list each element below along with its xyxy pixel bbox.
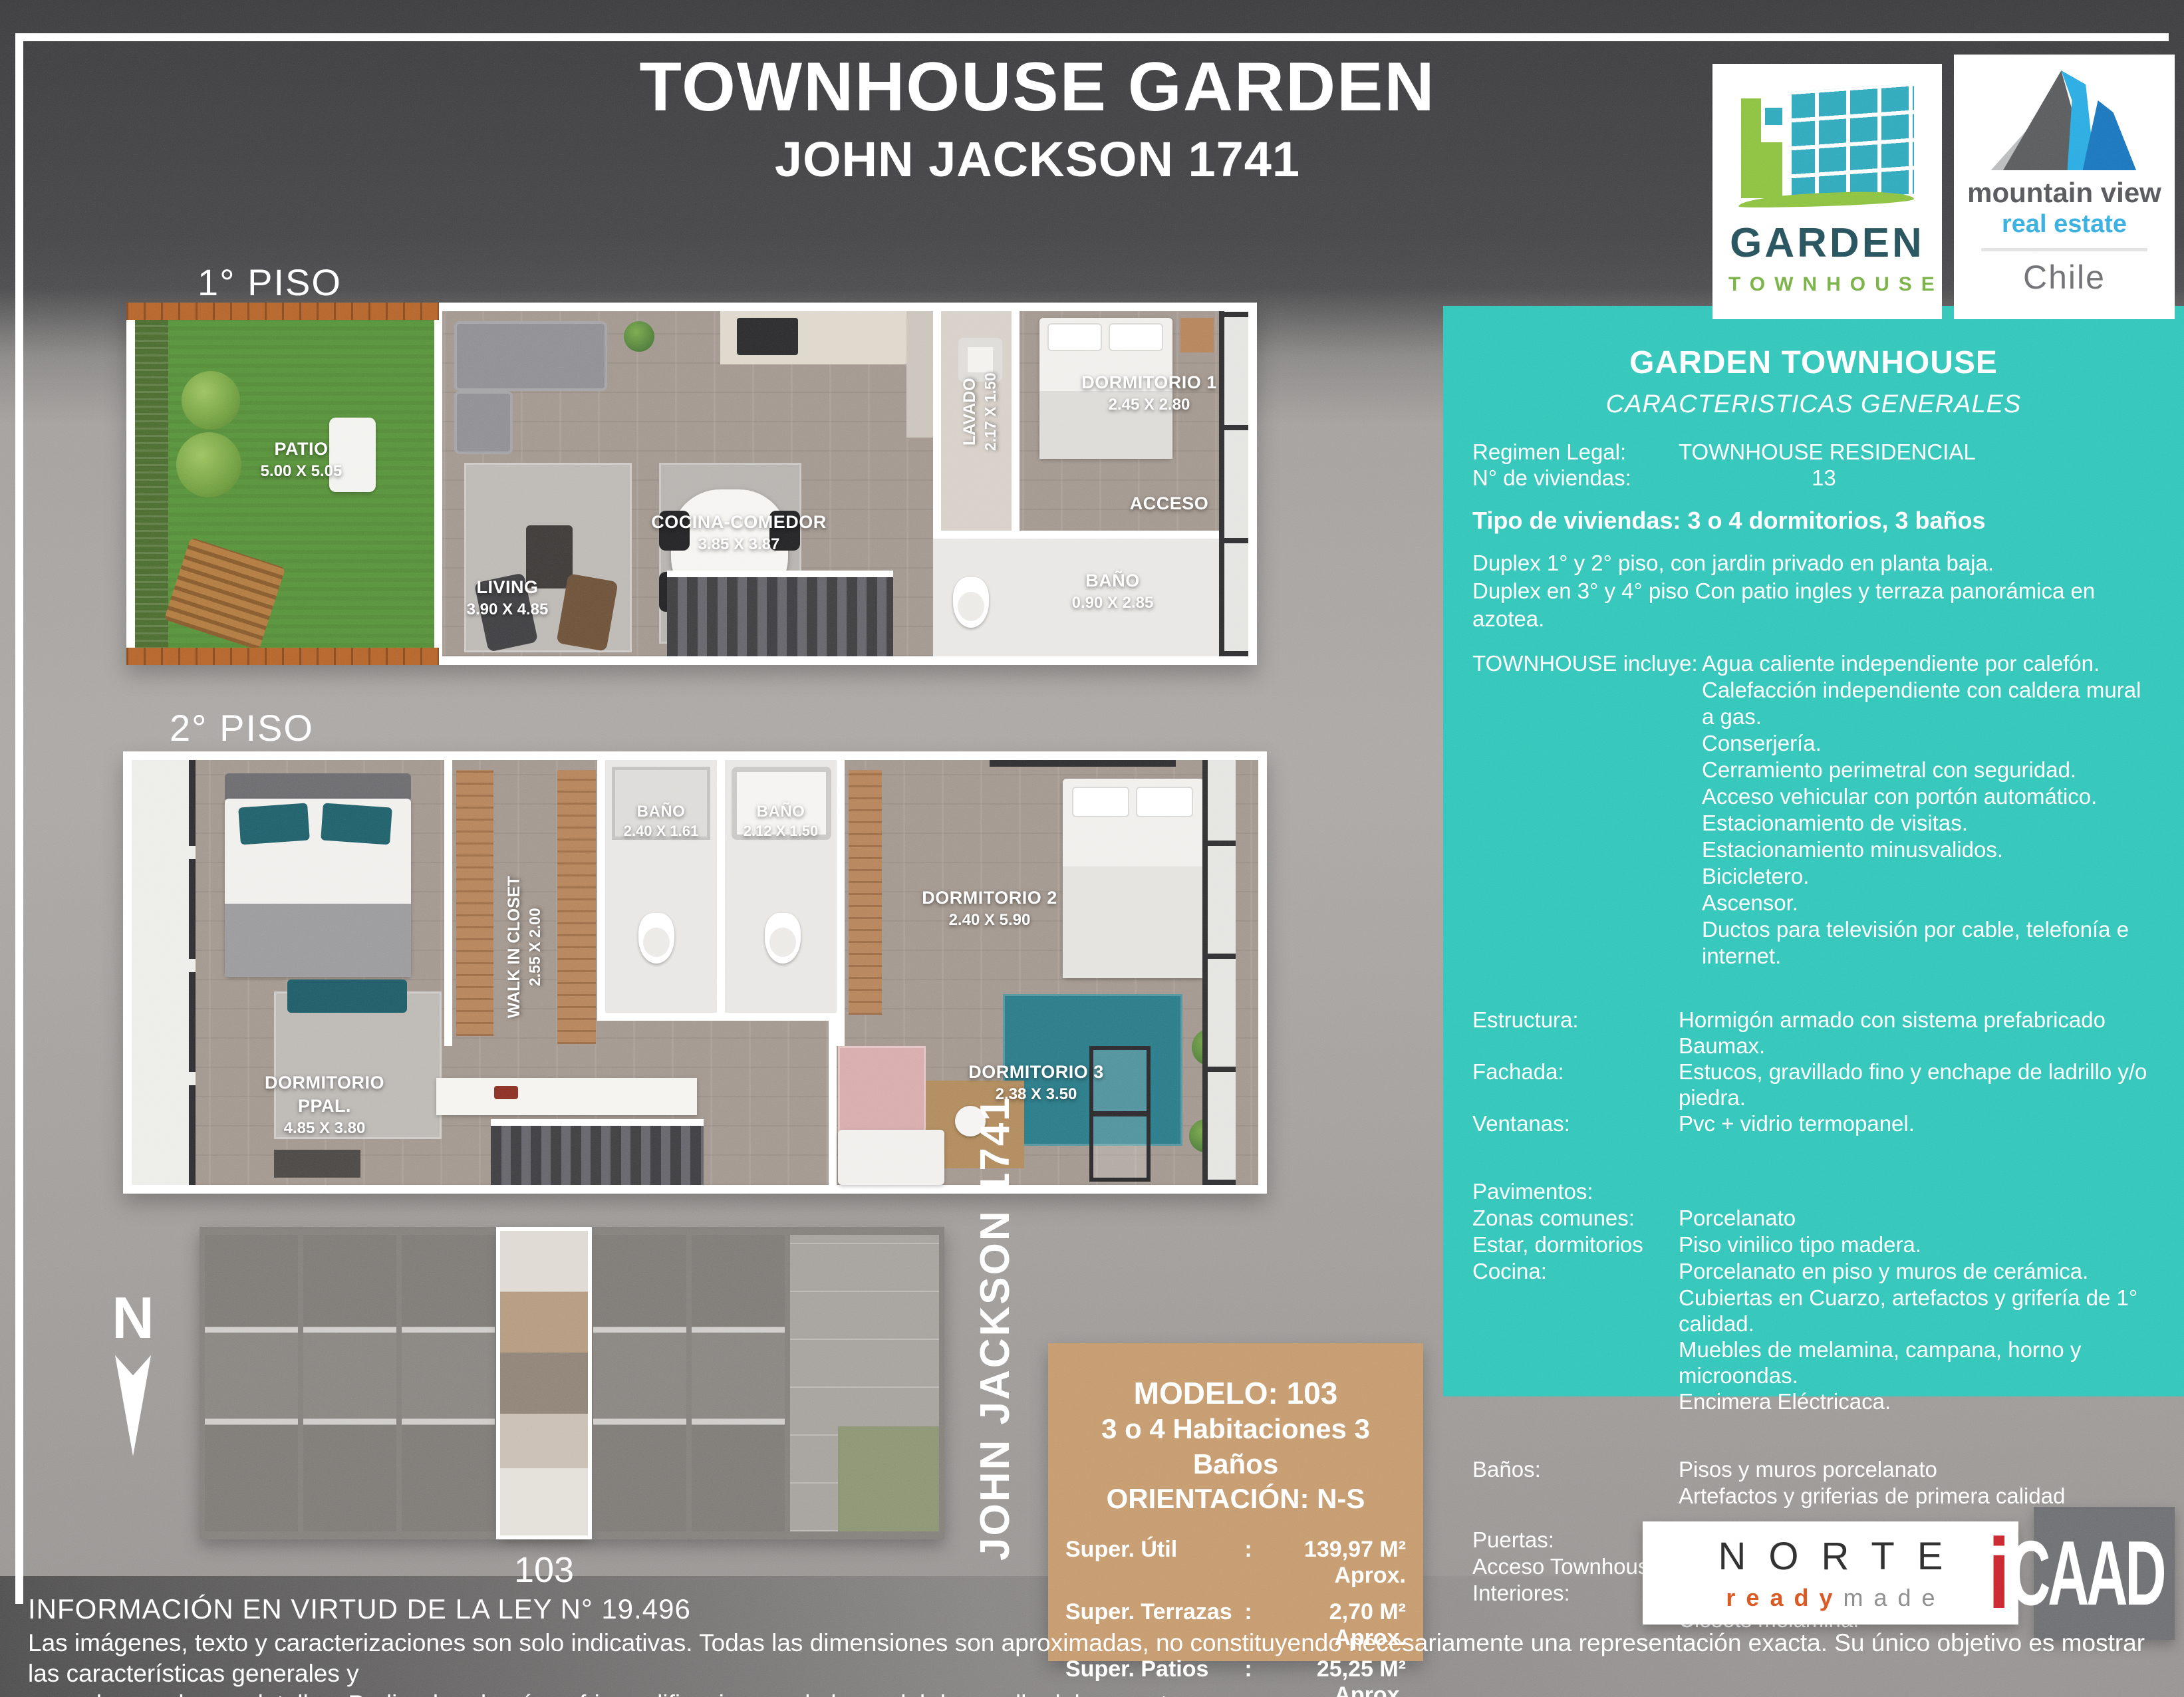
console-shape <box>436 1078 697 1115</box>
pillow-shape <box>321 803 392 845</box>
incluye-list: Agua caliente independiente por calefón.… <box>1702 650 2155 970</box>
frame-line-top <box>15 33 2169 41</box>
hedge-strip <box>135 311 168 656</box>
room-label-living: LIVING 3.90 X 4.85 <box>421 576 594 620</box>
room-label-dorm2: DORMITORIO 2 2.40 X 5.90 <box>890 886 1089 930</box>
site-unit <box>593 1235 686 1531</box>
floor1-plan: PATIO 5.00 X 5.05 LIVING 3.90 X 4.85 COC… <box>126 303 1257 665</box>
norte-text: NORTE <box>1718 1534 1966 1579</box>
window-frame <box>189 760 196 1185</box>
site-unit <box>402 1235 495 1531</box>
incluye-item: Ductos para televisión por cable, telefo… <box>1702 916 2155 970</box>
chile-text: Chile <box>1966 258 2163 297</box>
spec-row: Estar, dormitoriosPiso vinilico tipo mad… <box>1472 1232 2155 1258</box>
sofa-chaise-shape <box>454 391 513 454</box>
mountain-view-logo: mountain view real estate Chile <box>1954 55 2175 319</box>
spec-row: Cocina:Porcelanato en piso y muros de ce… <box>1472 1258 2155 1285</box>
bed-shape <box>838 1130 944 1185</box>
wall <box>717 760 725 1021</box>
room-label-acceso: ACCESO <box>1099 492 1239 515</box>
spec-row: Cubiertas en Cuarzo, artefactos y grifer… <box>1472 1285 2155 1337</box>
spec-row: Artefactos y griferias de primera calida… <box>1472 1483 2155 1509</box>
model-line3: ORIENTACIÓN: N-S <box>1065 1482 1406 1517</box>
wall <box>597 760 605 1021</box>
building-grid-shape <box>1788 83 1914 202</box>
model-row-util: Super. Útil : 139,97 M² Aprox. <box>1065 1537 1406 1589</box>
nightstand-shape <box>1180 318 1214 352</box>
frame-line-left <box>15 33 23 1604</box>
regimen-row: Regimen Legal: TOWNHOUSE RESIDENCIAL <box>1472 439 2155 465</box>
incluye-item: Agua caliente independiente por calefón. <box>1702 650 2155 677</box>
header: TOWNHOUSE GARDEN JOHN JACKSON 1741 <box>639 48 1435 188</box>
stairs <box>491 1119 704 1185</box>
real-estate-text: real estate <box>1966 210 2163 239</box>
bench-shape <box>287 979 407 1013</box>
headboard-shape <box>225 773 411 801</box>
site-unit-number: 103 <box>497 1549 591 1591</box>
toilet-shape <box>953 577 989 628</box>
viviendas-row: N° de viviendas: 13 <box>1472 465 2155 491</box>
spec-row: Ventanas:Pvc + vidrio termopanel. <box>1472 1110 2155 1137</box>
room-label-wic: WALK IN CLOSET 2.55 X 2.00 <box>503 874 545 1020</box>
panel-subtitle: CARACTERISTICAS GENERALES <box>1472 390 2155 419</box>
tipo-row: Tipo de viviendas: 3 o 4 dormitorios, 3 … <box>1472 507 2155 535</box>
room-label-cocina: COCINA-COMEDOR 3.85 X 3.87 <box>632 511 845 555</box>
model-title: MODELO: 103 <box>1065 1375 1406 1412</box>
brochure-poster: TOWNHOUSE GARDEN JOHN JACKSON 1741 GARDE… <box>0 0 2184 1697</box>
deck-strip-bottom <box>126 648 439 665</box>
room-label-bano1: BAÑO 0.90 X 2.85 <box>1026 569 1199 613</box>
building-window-shape <box>1765 108 1782 125</box>
room-label-bano2a: BAÑO 2.40 X 1.61 <box>603 801 720 841</box>
spec-row: Zonas comunes:Porcelanato <box>1472 1205 2155 1232</box>
incluye-item: Cerramiento perimetral con seguridad. <box>1702 757 2155 783</box>
garden-building-icon <box>1734 81 1921 207</box>
garden-logo-sub: TOWNHOUSE <box>1728 273 1935 296</box>
pillow-shape <box>1109 323 1163 351</box>
room-label-lavado: LAVADO 2.17 X 1.50 <box>959 338 1000 485</box>
north-letter: N <box>106 1289 160 1347</box>
window-band <box>1219 311 1248 656</box>
duplex-paragraph: Duplex 1° y 2° piso, con jardin privado … <box>1472 549 2155 633</box>
legal-disclaimer: INFORMACIÓN EN VIRTUD DE LA LEY N° 19.49… <box>28 1593 2176 1697</box>
mountain-icon <box>1988 70 2141 170</box>
site-unit <box>692 1235 785 1531</box>
room-label-dorm3: DORMITORIO 3 2.38 X 3.50 <box>936 1061 1136 1105</box>
room-label-bano2b: BAÑO 2.12 X 1.50 <box>722 801 839 841</box>
spec-row: Baños:Pisos y muros porcelanato <box>1472 1456 2155 1483</box>
garden-townhouse-logo: GARDEN TOWNHOUSE <box>1712 64 1942 319</box>
wall <box>444 760 452 1046</box>
toilet-shape <box>638 913 674 964</box>
room-label-dorm-ppal: DORMITORIO PPAL. 4.85 X 3.80 <box>238 1071 411 1138</box>
page-title: TOWNHOUSE GARDEN <box>639 48 1435 127</box>
spec-row: Muebles de melamina, campana, horno y mi… <box>1472 1337 2155 1388</box>
wall <box>933 531 1219 539</box>
plant-shape <box>624 321 654 352</box>
bush-shape <box>182 371 240 430</box>
spec-row: Encimera Eléctricaca. <box>1472 1388 2155 1415</box>
logo-divider <box>1981 248 2147 251</box>
incluye-block: TOWNHOUSE incluye: Agua caliente indepen… <box>1472 650 2155 970</box>
mountain-view-text: mountain view <box>1966 177 2163 209</box>
incluye-item: Bicicletero. <box>1702 863 2155 890</box>
incluye-item: Conserjería. <box>1702 730 2155 757</box>
characteristics-panel: GARDEN TOWNHOUSE CARACTERISTICAS GENERAL… <box>1443 306 2184 1396</box>
pillow-shape <box>1072 787 1129 817</box>
closet-shape <box>557 770 596 1044</box>
pink-rug <box>838 1046 926 1140</box>
deck-strip-top <box>126 303 439 320</box>
incluye-item: Estacionamiento minusvalidos. <box>1702 837 2155 863</box>
room-label-patio: PATIO 5.00 X 5.05 <box>215 438 388 481</box>
closet-shape <box>849 770 882 1015</box>
street-label-vertical: JOHN JACKSON 1741 <box>972 1215 1020 1561</box>
room-label-wic-wrap: WALK IN CLOSET 2.55 X 2.00 <box>451 926 597 979</box>
toilet-shape <box>765 913 801 964</box>
garden-logo-name: GARDEN <box>1728 219 1926 267</box>
spec-row: Pavimentos: <box>1472 1178 2155 1205</box>
incluye-item: Calefacción independiente con caldera mu… <box>1702 677 2155 730</box>
cooktop-shape <box>737 318 798 355</box>
console-shape <box>274 1150 360 1178</box>
floor2-label: 2° PISO <box>170 706 314 749</box>
closet-shape <box>456 770 493 1036</box>
blanket-shape <box>225 904 411 977</box>
terrace-band <box>132 760 192 1185</box>
incluye-item: Ascensor. <box>1702 890 2155 916</box>
site-unit-highlighted <box>500 1231 588 1535</box>
site-unit <box>205 1235 298 1531</box>
site-garden-patch <box>838 1426 939 1531</box>
window-band <box>1202 760 1236 1185</box>
wall <box>597 1013 845 1021</box>
room-label-dorm1: DORMITORIO 1 2.45 X 2.80 <box>1066 371 1232 415</box>
model-line2: 3 o 4 Habitaciones 3 Baños <box>1065 1412 1406 1482</box>
incluye-item: Acceso vehicular con portón automático. <box>1702 783 2155 810</box>
page-subtitle: JOHN JACKSON 1741 <box>639 131 1435 188</box>
north-indicator: N <box>106 1289 160 1456</box>
spec-row: Fachada:Estucos, gravillado fino y encha… <box>1472 1059 2155 1110</box>
decor-shape <box>494 1086 518 1099</box>
spec-row: Estructura:Hormigón armado con sistema p… <box>1472 1007 2155 1059</box>
disclaimer-line1: Las imágenes, texto y caracterizaciones … <box>28 1628 2176 1689</box>
pillow-shape <box>1047 323 1102 351</box>
pillow-shape <box>1136 787 1193 817</box>
window-frame <box>990 760 1176 767</box>
disclaimer-line2: no cada uno de sus detalles. Pudiendo ad… <box>28 1689 2176 1697</box>
wall <box>829 1021 837 1185</box>
site-plan <box>200 1227 944 1539</box>
disclaimer-title: INFORMACIÓN EN VIRTUD DE LA LEY N° 19.49… <box>28 1593 2176 1625</box>
room-label-lavado-wrap: LAVADO 2.17 X 1.50 <box>906 391 1053 444</box>
floor2-plan: DORMITORIO PPAL. 4.85 X 3.80 WALK IN CLO… <box>123 751 1267 1194</box>
pillow-shape <box>238 803 310 845</box>
floor1-label: 1° PISO <box>198 261 342 304</box>
stairs <box>667 571 893 656</box>
sofa-shape <box>454 321 607 391</box>
site-unit <box>303 1235 396 1531</box>
panel-title: GARDEN TOWNHOUSE <box>1472 344 2155 381</box>
north-arrow-icon <box>115 1355 151 1456</box>
incluye-item: Estacionamiento de visitas. <box>1702 810 2155 837</box>
